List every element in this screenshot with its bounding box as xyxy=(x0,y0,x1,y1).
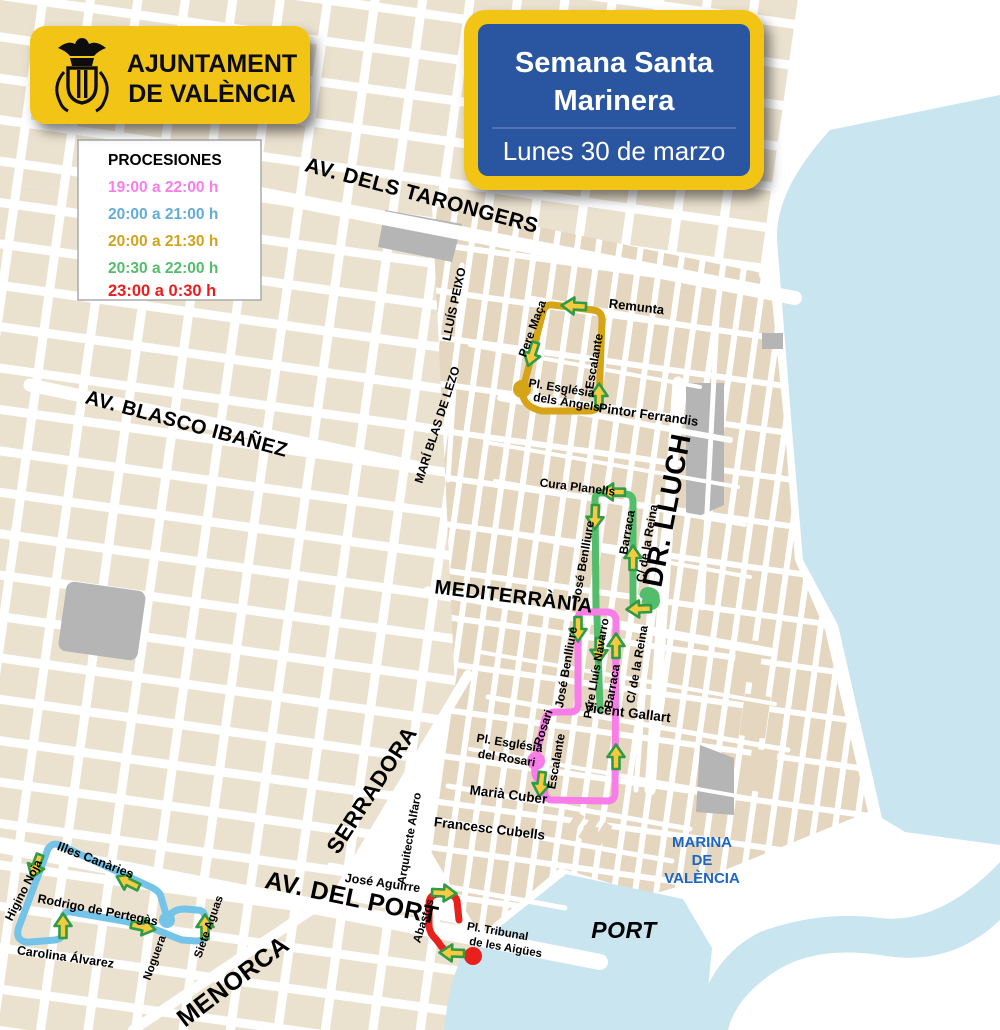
route-2300-0030-dot xyxy=(464,947,482,965)
marina-label-line3: VALÈNCIA xyxy=(664,870,740,887)
legend-item-2300-0030: 23:00 a 0:30 h xyxy=(108,282,216,300)
event-badge: Semana Santa Marinera Lunes 30 de marzo xyxy=(464,10,764,190)
marina-label-line2: DE xyxy=(692,852,713,869)
legend-item-2000-2100: 20:00 a 21:00 h xyxy=(108,206,218,223)
event-date: Lunes 30 de marzo xyxy=(503,136,726,166)
municipality-name-line1: AJUNTAMENT xyxy=(127,50,297,78)
event-title-line2: Marinera xyxy=(554,85,676,117)
municipality-name-line2: DE VALÈNCIA xyxy=(128,79,296,108)
legend: PROCESIONES 19:00 a 22:00 h 20:00 a 21:0… xyxy=(78,140,261,300)
marina-label-line1: MARINA xyxy=(672,834,732,851)
event-title-line1: Semana Santa xyxy=(515,47,714,79)
legend-item-2030-2200: 20:30 a 22:00 h xyxy=(108,260,218,277)
procession-map-poster: MARINA DE VALÈNCIA PORT xyxy=(0,0,1000,1030)
legend-item-1900-2200: 19:00 a 22:00 h xyxy=(108,179,218,196)
legend-title: PROCESIONES xyxy=(108,152,222,169)
valencia-map: MARINA DE VALÈNCIA PORT xyxy=(0,0,1000,1030)
legend-item-2000-2130: 20:00 a 21:30 h xyxy=(108,233,218,250)
port-label: PORT xyxy=(591,917,658,943)
route-2000-2100-dot xyxy=(159,912,175,928)
municipality-badge: AJUNTAMENT DE VALÈNCIA xyxy=(30,26,310,124)
